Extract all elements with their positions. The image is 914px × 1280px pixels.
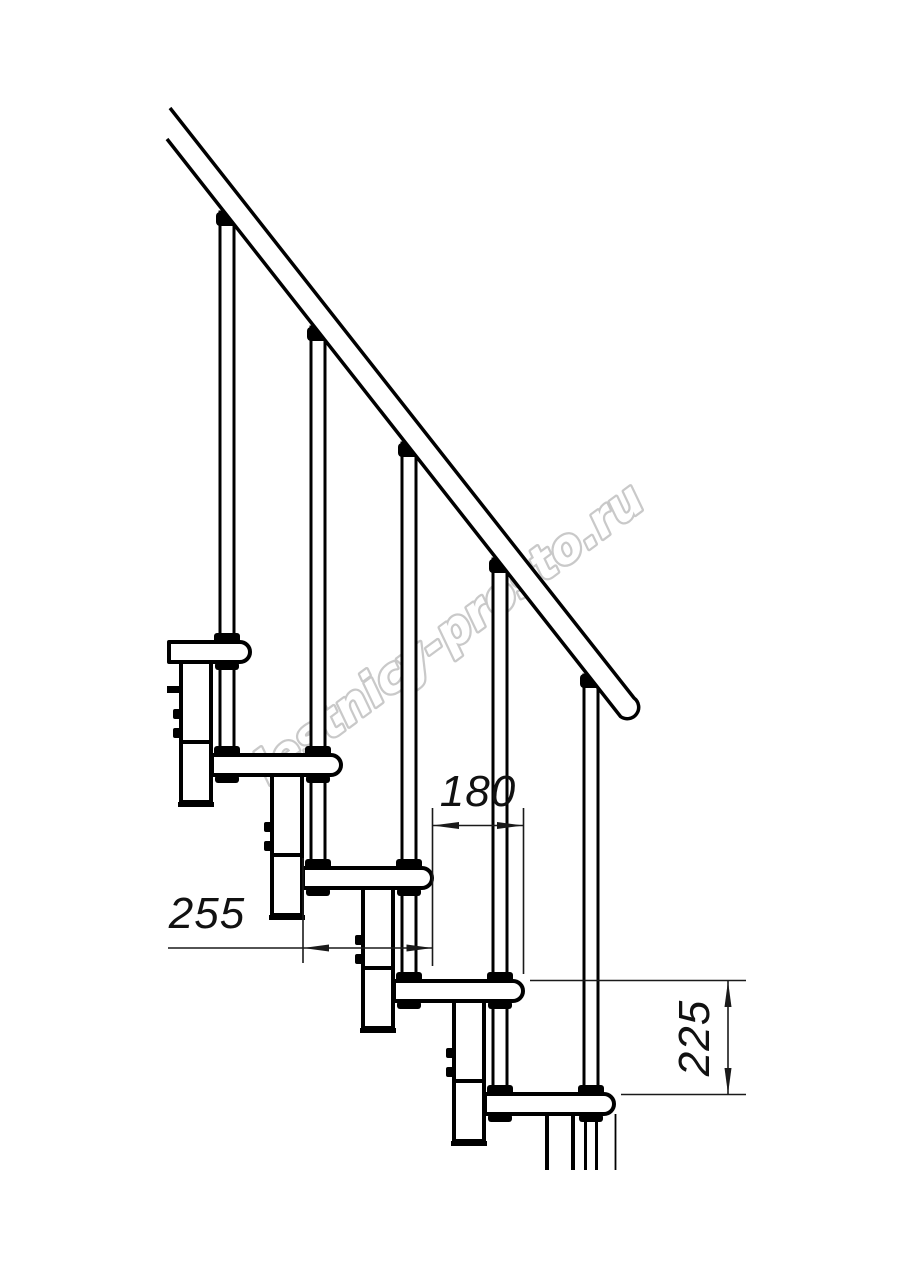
treads [169,642,614,1114]
cut-remnant-tab [167,686,182,693]
dimension-label-run: 180 [440,767,516,816]
staircase-technical-drawing: lestnicy-prosto.ru [0,0,914,1280]
arrowhead-down-icon [725,1068,732,1094]
arrowhead-up-icon [725,981,732,1007]
bolt [446,1067,455,1077]
tread [394,981,523,1001]
spine-pipe [311,775,325,868]
baluster [220,212,234,642]
tread-fastener [397,1001,421,1009]
spine-pipe [402,888,416,981]
dimension-label-length: 255 [168,889,245,938]
arrowhead-right-icon [497,822,524,829]
baluster-base-mount [578,1085,604,1095]
pipe-landing-mount [214,746,240,756]
tread-fastener [215,775,239,783]
bolt [264,822,273,832]
baluster [311,327,325,755]
pipe-landing-mount [396,972,422,982]
bolt [173,728,182,738]
column-cap [451,1141,487,1146]
support-column [454,1001,484,1141]
tread [485,1094,614,1114]
bolt [446,1048,455,1058]
pipe-landing-mount [305,859,331,869]
baluster-base-mount [214,633,240,643]
baluster [402,443,416,868]
column-cap [178,802,214,807]
spine-pipe [493,1001,507,1094]
column-cap [360,1028,396,1033]
baluster-base-mount [305,746,331,756]
dimension-label-rise: 225 [670,1000,719,1077]
bolt [355,935,364,945]
support-column [272,775,302,915]
spine-pipe [220,662,234,755]
arrowhead-left-icon [433,822,460,829]
arrowhead-right-icon [407,945,433,952]
support-column [181,662,211,802]
bolt [173,709,182,719]
baluster [584,675,598,1094]
tread-fastener [488,1114,512,1122]
tread-fastener [306,888,330,896]
column-cap [269,915,305,920]
tread-fastener [488,1001,512,1009]
baluster-base-mount [396,859,422,869]
pipe-landing-mount [487,1085,513,1095]
tread-fastener [215,662,239,670]
tread [212,755,341,775]
tread-fastener [397,888,421,896]
arrowhead-left-icon [303,945,329,952]
baluster-base-mount [487,972,513,982]
support-column [363,888,393,1028]
tread-fastener [579,1114,603,1122]
drawing-page: lestnicy-prosto.ru [0,0,914,1280]
dimension-labels: 180 255 225 [168,767,719,1077]
tread [169,642,250,662]
bolt [355,954,364,964]
tread [303,868,432,888]
tread-fastener [306,775,330,783]
bolt [264,841,273,851]
